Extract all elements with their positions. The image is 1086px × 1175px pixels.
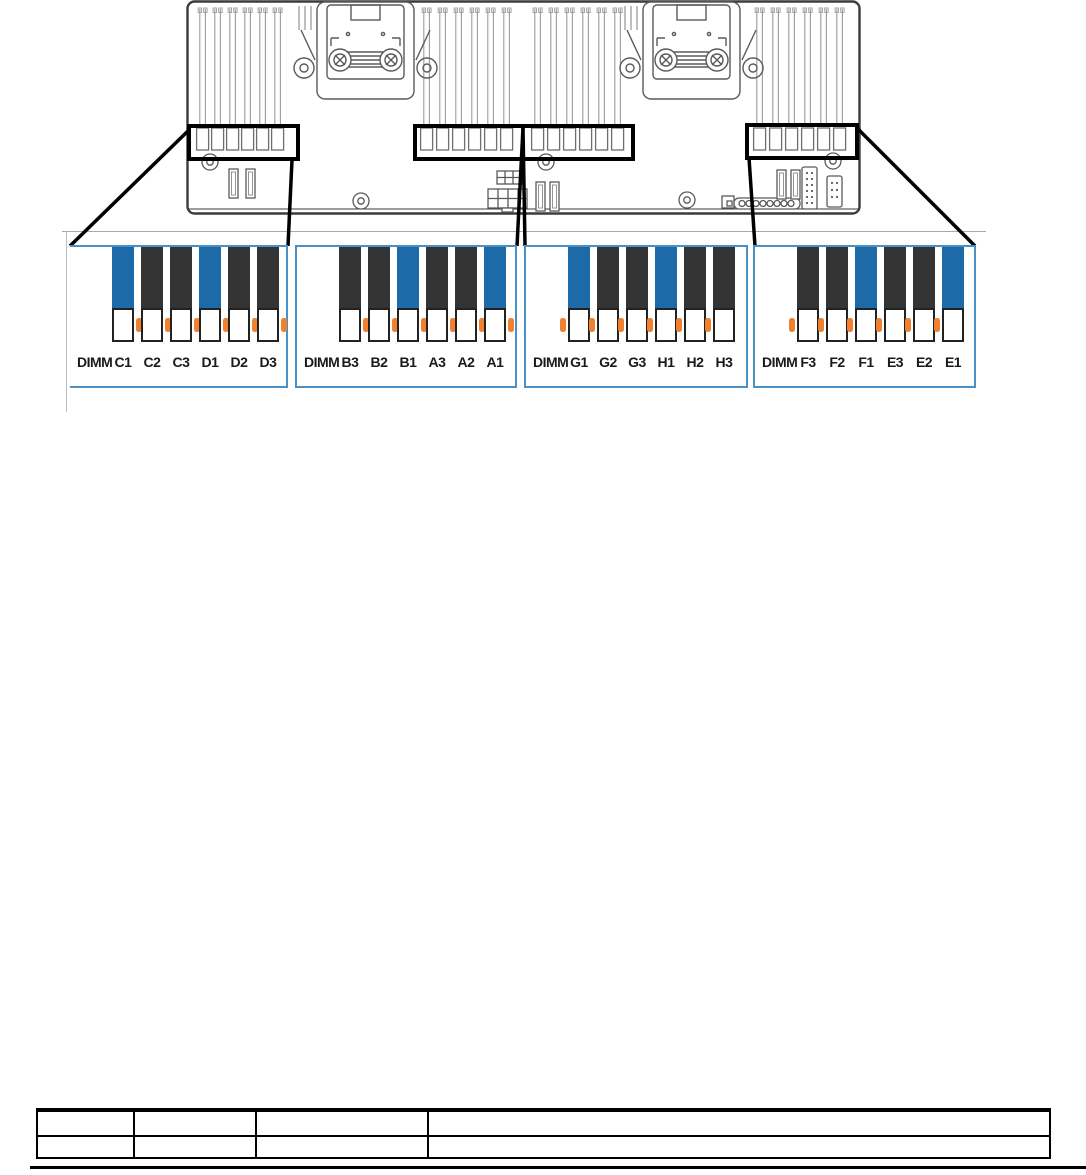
dimm-slot-D1: D1	[199, 247, 221, 386]
dimm-slot-label: F2	[829, 354, 844, 370]
dimm-slot-B2: B2	[368, 247, 390, 386]
dimm-slot-label: C1	[115, 354, 132, 370]
dimm-slot-C3: C3	[170, 247, 192, 386]
dimm-panel-title: DIMM	[533, 354, 568, 370]
dimm-release-tab	[676, 318, 682, 332]
dimm-latch-box	[855, 308, 877, 342]
dimm-slot-E3: E3	[884, 247, 906, 386]
dimm-panel-gh: DIMMG1G2G3H1H2H3	[524, 245, 748, 388]
dimm-slot-F2: F2	[826, 247, 848, 386]
dimm-release-tab	[589, 318, 595, 332]
dimm-slot-label: E3	[887, 354, 903, 370]
dimm-slot-label: D1	[202, 354, 219, 370]
dimm-slot-label: A1	[487, 354, 504, 370]
dimm-bar-normal	[684, 247, 706, 308]
table-cell	[428, 1136, 1050, 1158]
dimm-release-tab	[905, 318, 911, 332]
dimm-slot-label: G3	[628, 354, 646, 370]
dimm-bar-highlighted	[855, 247, 877, 308]
dimm-slot-label: H1	[658, 354, 675, 370]
table-row	[37, 1110, 1050, 1136]
dimm-release-tab	[876, 318, 882, 332]
dimm-slot-F3: F3	[797, 247, 819, 386]
dimm-latch-box	[826, 308, 848, 342]
dimm-slot-G2: G2	[597, 247, 619, 386]
page-footer-rule	[30, 1166, 1086, 1169]
table-cell	[37, 1136, 134, 1158]
dimm-bar-normal	[826, 247, 848, 308]
dimm-bar-highlighted	[484, 247, 506, 308]
dimm-slot-label: C3	[173, 354, 190, 370]
table-cell	[37, 1110, 134, 1136]
dimm-bar-highlighted	[112, 247, 134, 308]
dimm-slot-A3: A3	[426, 247, 448, 386]
dimm-slot-H2: H2	[684, 247, 706, 386]
dimm-latch-box	[112, 308, 134, 342]
dimm-latch-box	[170, 308, 192, 342]
dimm-slot-label: C2	[144, 354, 161, 370]
dimm-slot-F1: F1	[855, 247, 877, 386]
dimm-latch-box	[455, 308, 477, 342]
dimm-slot-C2: C2	[141, 247, 163, 386]
dimm-slot-D3: D3	[257, 247, 279, 386]
dimm-release-tab	[560, 318, 566, 332]
dimm-latch-box	[426, 308, 448, 342]
dimm-slot-label: B1	[400, 354, 417, 370]
dimm-slot-label: B2	[371, 354, 388, 370]
memory-population-table	[36, 1108, 1051, 1159]
dimm-slot-E1: E1	[942, 247, 964, 386]
dimm-release-tab	[508, 318, 514, 332]
dimm-latch-box	[141, 308, 163, 342]
dimm-bar-normal	[713, 247, 735, 308]
dimm-slot-label: A2	[458, 354, 475, 370]
dimm-bar-highlighted	[568, 247, 590, 308]
table-row	[37, 1136, 1050, 1158]
dimm-slot-label: D2	[231, 354, 248, 370]
dimm-panel-fe: DIMMF3F2F1E3E2E1	[753, 245, 976, 388]
dimm-slot-label: B3	[342, 354, 359, 370]
dimm-release-tab	[934, 318, 940, 332]
dimm-slot-D2: D2	[228, 247, 250, 386]
dimm-release-tab	[281, 318, 287, 332]
dimm-slot-label: F1	[858, 354, 873, 370]
dimm-slot-G1: G1	[568, 247, 590, 386]
dimm-slot-G3: G3	[626, 247, 648, 386]
dimm-bar-normal	[257, 247, 279, 308]
dimm-panel-title: DIMM	[77, 354, 112, 370]
dimm-slot-label: E2	[916, 354, 932, 370]
dimm-release-tab	[647, 318, 653, 332]
dimm-slot-C1: C1	[112, 247, 134, 386]
dimm-latch-box	[713, 308, 735, 342]
dimm-latch-box	[884, 308, 906, 342]
dimm-latch-box	[797, 308, 819, 342]
dimm-slot-H3: H3	[713, 247, 735, 386]
dimm-bar-normal	[228, 247, 250, 308]
dimm-bar-normal	[626, 247, 648, 308]
dimm-latch-box	[655, 308, 677, 342]
manual-page: DIMMC1C2C3D1D2D3DIMMB3B2B1A3A2A1DIMMG1G2…	[0, 0, 1086, 1175]
dimm-bar-highlighted	[655, 247, 677, 308]
table-cell	[134, 1136, 256, 1158]
dimm-bar-normal	[368, 247, 390, 308]
dimm-latch-box	[339, 308, 361, 342]
dimm-bar-normal	[170, 247, 192, 308]
dimm-slot-A1: A1	[484, 247, 506, 386]
dimm-latch-box	[913, 308, 935, 342]
dimm-latch-box	[597, 308, 619, 342]
dimm-release-tab	[789, 318, 795, 332]
dimm-release-tab	[705, 318, 711, 332]
dimm-slot-label: F3	[800, 354, 815, 370]
dimm-latch-box	[568, 308, 590, 342]
table-cell	[134, 1110, 256, 1136]
dimm-slot-label: E1	[945, 354, 961, 370]
dimm-bar-normal	[426, 247, 448, 308]
dimm-panel-ba: DIMMB3B2B1A3A2A1	[295, 245, 517, 388]
dimm-slot-label: G2	[599, 354, 617, 370]
dimm-slot-label: D3	[260, 354, 277, 370]
dimm-slot-label: H2	[687, 354, 704, 370]
dimm-latch-box	[684, 308, 706, 342]
dimm-bar-normal	[884, 247, 906, 308]
table-cell	[428, 1110, 1050, 1136]
dimm-latch-box	[199, 308, 221, 342]
dimm-bar-highlighted	[942, 247, 964, 308]
dimm-bar-highlighted	[397, 247, 419, 308]
dimm-latch-box	[942, 308, 964, 342]
dimm-bar-normal	[597, 247, 619, 308]
dimm-slot-B1: B1	[397, 247, 419, 386]
dimm-release-tab	[818, 318, 824, 332]
dimm-latch-box	[228, 308, 250, 342]
table-cell	[256, 1110, 428, 1136]
dimm-slot-E2: E2	[913, 247, 935, 386]
dimm-bar-normal	[797, 247, 819, 308]
dimm-bar-normal	[339, 247, 361, 308]
dimm-bar-normal	[141, 247, 163, 308]
dimm-bar-normal	[455, 247, 477, 308]
dimm-slot-label: A3	[429, 354, 446, 370]
dimm-slot-A2: A2	[455, 247, 477, 386]
dimm-latch-box	[368, 308, 390, 342]
dimm-bar-normal	[913, 247, 935, 308]
table-cell	[256, 1136, 428, 1158]
dimm-latch-box	[484, 308, 506, 342]
dimm-latch-box	[397, 308, 419, 342]
dimm-release-tab	[847, 318, 853, 332]
dimm-latch-box	[257, 308, 279, 342]
dimm-slot-B3: B3	[339, 247, 361, 386]
dimm-release-tab	[618, 318, 624, 332]
dimm-slot-label: H3	[716, 354, 733, 370]
dimm-slot-label: G1	[570, 354, 588, 370]
dimm-panel-cd: DIMMC1C2C3D1D2D3	[70, 245, 288, 388]
dimm-panel-title: DIMM	[304, 354, 339, 370]
dimm-bar-highlighted	[199, 247, 221, 308]
dimm-slot-H1: H1	[655, 247, 677, 386]
dimm-panel-title: DIMM	[762, 354, 797, 370]
dimm-latch-box	[626, 308, 648, 342]
